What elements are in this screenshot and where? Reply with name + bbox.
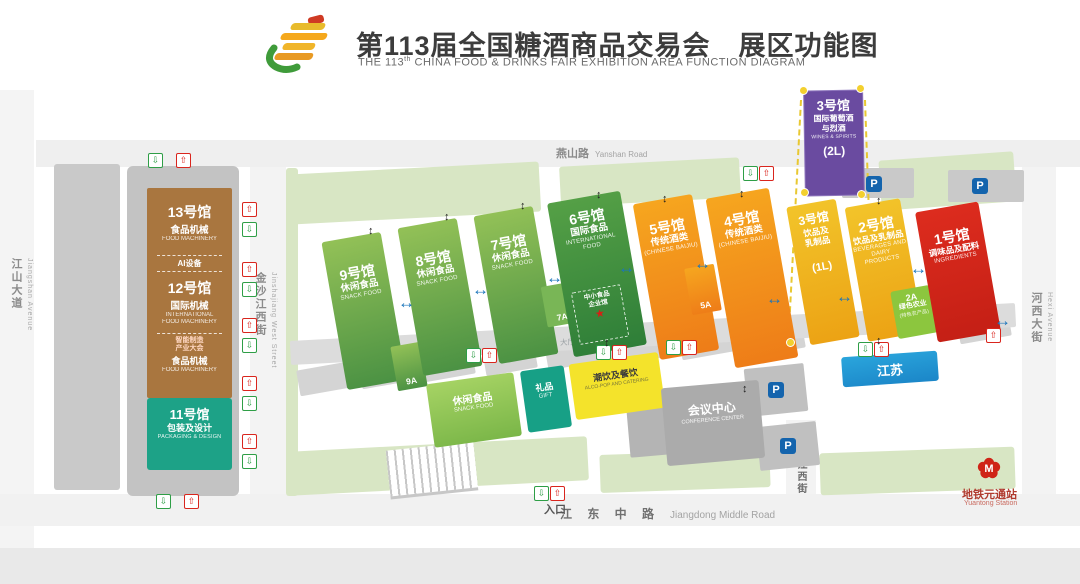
snack-food-building: 休闲食品 SNACK FOOD — [426, 372, 522, 448]
hall-3-2l: 3号馆 国际葡萄酒 与烈酒 WINES & SPIRITS (2L) — [803, 89, 865, 196]
queue-lanes — [386, 442, 479, 500]
west-annex-building — [54, 164, 120, 490]
transfer-arrow-icon: ↔ — [546, 269, 563, 286]
jiangsu-label: 江苏 — [876, 359, 903, 380]
transfer-arrow-icon: ↔ — [910, 260, 927, 277]
exhibition-map: 第113届全国糖酒商品交易会 展区功能图 THE 113th CHINA FOO… — [0, 0, 1080, 584]
projection-dot — [856, 84, 865, 93]
hall-13-12-block: 13号馆 食品机械 FOOD MACHINERY AI设备 12号馆 国际机械 … — [147, 188, 232, 398]
hall-entry-arrow-icon: ↕ — [368, 226, 374, 237]
entrance-gate-icon: ⇩ — [743, 166, 758, 181]
hall-11: 11号馆 包装及设计 PACKAGING & DESIGN — [147, 398, 232, 470]
entrance-gate-icon: ⇩ — [242, 282, 257, 297]
hall-11-category: 包装及设计 — [147, 423, 232, 434]
transfer-arrow-icon: ↔ — [472, 281, 489, 298]
jiangdong-road-label: 江 东 中 路 Jiangdong Middle Road — [560, 505, 775, 522]
entrance-gate-icon: ⇩ — [242, 396, 257, 411]
parking-icon: P — [768, 382, 784, 398]
page-subtitle: THE 113th CHINA FOOD & DRINKS FAIR EXHIB… — [358, 56, 805, 69]
smart-mfg-tag-1: 智能制造 — [147, 337, 232, 346]
hall-3-2l-floor: (2L) — [805, 143, 863, 158]
entrance-gate-icon: ⇩ — [858, 342, 873, 357]
subtitle-prefix: THE 113 — [358, 57, 404, 69]
hexi-en: Hexi Avenue — [1046, 292, 1053, 344]
hall-12-sub-category: 食品机械 — [147, 354, 232, 367]
projection-dot — [786, 338, 795, 347]
projection-dot — [799, 86, 808, 95]
hall-3-1l-floor: (1L) — [796, 257, 847, 278]
hall-12-category: 国际机械 — [147, 298, 232, 312]
metro-station-label-en: Yuantong Station — [964, 500, 1017, 507]
smart-mfg-tag-2: 产业大会 — [147, 345, 232, 354]
exit-gate-icon: ⇧ — [242, 262, 257, 277]
exit-gate-icon: ⇧ — [242, 434, 257, 449]
entrance-gate-icon: ⇩ — [156, 494, 171, 509]
exit-gate-icon: ⇧ — [682, 340, 697, 355]
hall-13-category: 食品机械 — [147, 222, 232, 236]
hall-11-category-en: PACKAGING & DESIGN — [147, 434, 232, 441]
yanshan-road-label: 燕山路 Yanshan Road — [556, 145, 647, 161]
bottom-strip — [0, 548, 1080, 584]
projection-dot — [800, 188, 809, 197]
ai-zone-label: AI设备 — [147, 258, 232, 269]
exit-gate-icon: ⇧ — [242, 318, 257, 333]
hall-13-category-en: FOOD MACHINERY — [147, 236, 232, 243]
exit-gate-icon: ⇧ — [986, 328, 1001, 343]
entrance-gate-icon: ⇩ — [242, 338, 257, 353]
gift-building: 礼品 GIFT — [520, 365, 572, 433]
hall-entry-arrow-icon: ↕ — [876, 196, 882, 207]
transfer-arrow-icon: ↔ — [618, 259, 635, 276]
yanshan-zh: 燕山路 — [556, 145, 589, 161]
hall-entry-arrow-icon: ↕ — [662, 194, 668, 205]
hall-11-number: 11号馆 — [147, 408, 232, 423]
hall-entry-arrow-icon: ↕ — [876, 336, 882, 347]
jiangdong-zh: 江 东 中 路 — [560, 505, 660, 522]
projection-dot — [857, 190, 866, 199]
exit-gate-icon: ⇧ — [612, 345, 627, 360]
transfer-arrow-icon: ↔ — [994, 312, 1011, 329]
svg-text:M: M — [984, 463, 993, 475]
parking-icon: P — [866, 176, 882, 192]
exit-gate-icon: ⇧ — [482, 348, 497, 363]
exit-gate-icon: ⇧ — [176, 153, 191, 168]
exit-gate-icon: ⇧ — [242, 202, 257, 217]
jiangdong-en: Jiangdong Middle Road — [670, 510, 775, 521]
fair-logo — [256, 14, 340, 74]
hall-12-category-en1: INTERNATIONAL — [147, 312, 232, 319]
entrance-gate-icon: ⇩ — [242, 454, 257, 469]
sme-food-zone: 中小食品 企业馆 ★ — [571, 284, 629, 345]
jiangshan-zh: 江山大道 — [8, 258, 24, 331]
hall-entry-arrow-icon: ↕ — [604, 338, 610, 349]
hall-3-2l-number: 3号馆 — [804, 99, 862, 115]
hexi-zh: 河西大街 — [1028, 292, 1044, 344]
entrance-gate-icon: ⇩ — [666, 340, 681, 355]
transfer-arrow-icon: ↔ — [398, 294, 415, 311]
lawn — [286, 168, 298, 496]
hall-12-sub-category-en: FOOD MACHINERY — [147, 367, 232, 374]
hall-entry-arrow-icon: ↕ — [520, 201, 526, 212]
yanshan-en: Yanshan Road — [595, 150, 647, 159]
parking-icon: P — [780, 438, 796, 454]
jinshajiang-en: Jinshajiang West Street — [270, 272, 277, 368]
hall-3-2l-category-en: WINES & SPIRITS — [805, 133, 863, 140]
hall-12-number: 12号馆 — [147, 278, 232, 298]
hall-entry-arrow-icon: ↕ — [444, 212, 450, 223]
entrance-gate-icon: ⇩ — [534, 486, 549, 501]
entrance-gate-icon: ⇩ — [148, 153, 163, 168]
hall-13-number: 13号馆 — [147, 202, 232, 222]
exit-gate-icon: ⇧ — [242, 376, 257, 391]
parking-icon: P — [972, 178, 988, 194]
metro-logo: M — [976, 456, 1002, 480]
conference-center: 会议中心 CONFERENCE CENTER — [661, 380, 765, 466]
hall-entry-arrow-icon: ↕ — [596, 190, 602, 201]
transfer-arrow-icon: ↔ — [694, 255, 711, 272]
hall-entry-arrow-icon: ↕ — [739, 189, 745, 200]
entrance-gate-icon: ⇩ — [242, 222, 257, 237]
hall-12-category-en2: FOOD MACHINERY — [147, 319, 232, 326]
jiangshan-en: Jiangshan Avenue — [26, 258, 33, 331]
exit-gate-icon: ⇧ — [550, 486, 565, 501]
transfer-arrow-icon: ↔ — [766, 290, 783, 307]
hexi-avenue-label: 河西大街 Hexi Avenue — [1028, 292, 1053, 344]
entrance-label: 入口 — [544, 501, 566, 517]
subtitle-sup: th — [404, 56, 411, 63]
subtitle-rest: CHINA FOOD & DRINKS FAIR EXHIBITION AREA… — [411, 57, 806, 69]
jiangsu-pavilion: 江苏 — [841, 351, 939, 388]
jiangshan-avenue-label: 江山大道 Jiangshan Avenue — [8, 258, 33, 331]
entrance-gate-icon: ⇩ — [466, 348, 481, 363]
transfer-arrow-icon: ↔ — [836, 288, 853, 305]
hall-entry-arrow-icon: ↕ — [742, 384, 748, 395]
exit-gate-icon: ⇧ — [184, 494, 199, 509]
exit-gate-icon: ⇧ — [759, 166, 774, 181]
